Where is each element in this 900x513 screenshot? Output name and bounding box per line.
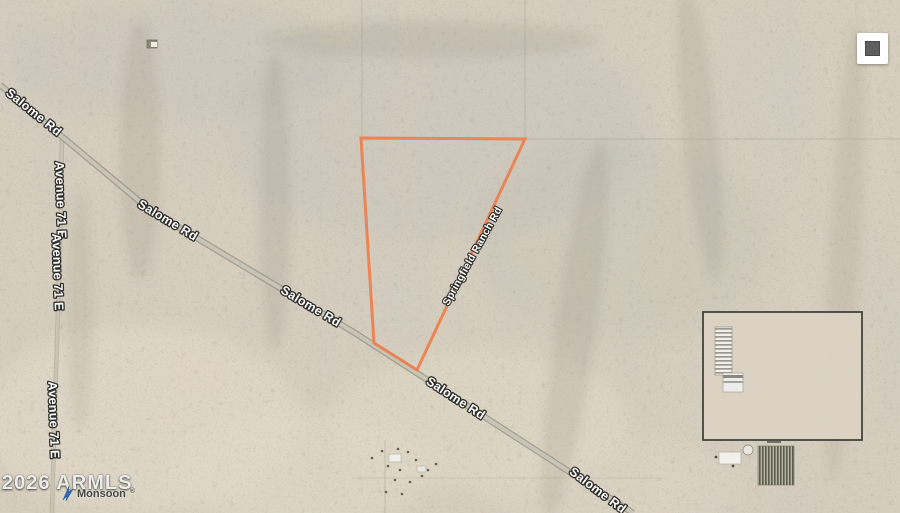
avenue-71-e-label-2: Avenue 71 E <box>49 233 66 311</box>
monsoon-logo-icon <box>60 485 74 502</box>
white-shed <box>719 452 741 464</box>
round-tank <box>743 445 753 455</box>
avenue-71-e-label-3: Avenue 71 E <box>45 381 62 459</box>
map-control-button[interactable] <box>857 33 888 64</box>
map-view: Salome Rd Salome Rd Salome Rd Salome Rd … <box>0 0 900 513</box>
square-icon <box>865 41 880 56</box>
monsoon-attribution: Monsoon ® <box>60 485 135 502</box>
map-canvas[interactable]: Salome Rd Salome Rd Salome Rd Salome Rd … <box>0 0 900 513</box>
ribbed-building <box>715 327 732 375</box>
shack-top-left <box>147 40 157 48</box>
avenue-71-e-label-1: Avenue 71 E <box>52 161 69 239</box>
monsoon-brand-name: Monsoon <box>77 488 126 500</box>
registered-mark: ® <box>130 488 135 495</box>
row-panels <box>758 446 794 485</box>
